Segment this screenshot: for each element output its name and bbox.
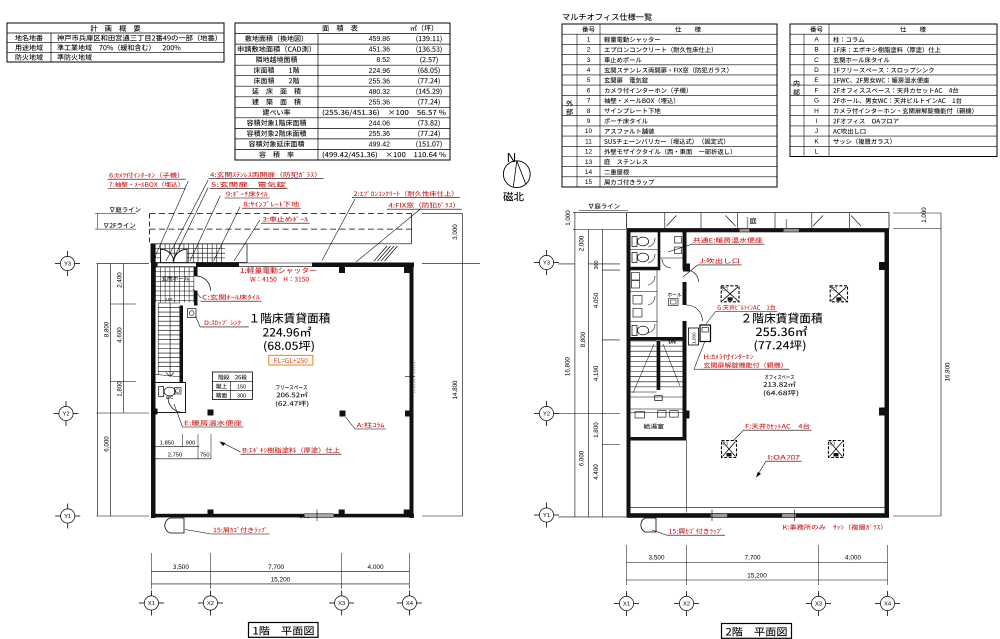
- svg-text:7,700: 7,700: [745, 555, 761, 562]
- svg-text:A: A: [814, 37, 819, 44]
- svg-text:15,200: 15,200: [747, 573, 767, 580]
- svg-text:X4: X4: [884, 602, 892, 608]
- svg-text:X2: X2: [683, 602, 690, 608]
- svg-text:14,800: 14,800: [452, 380, 459, 399]
- svg-text:DN: DN: [669, 340, 677, 346]
- svg-text:16,800: 16,800: [564, 357, 571, 376]
- svg-text:4,400: 4,400: [593, 464, 600, 480]
- svg-text:X1: X1: [148, 601, 155, 607]
- svg-text:N: N: [507, 150, 516, 165]
- svg-text:I: I: [816, 118, 818, 125]
- svg-text:Y1: Y1: [64, 514, 71, 520]
- svg-text:900: 900: [186, 440, 196, 446]
- svg-text:C: C: [814, 57, 819, 64]
- svg-text:255.36: 255.36: [369, 99, 391, 106]
- svg-text:Y3: Y3: [64, 262, 71, 268]
- svg-text:X1: X1: [623, 602, 630, 608]
- svg-text:459.86: 459.86: [369, 36, 391, 43]
- svg-text:10: 10: [585, 128, 593, 135]
- svg-text:G: G: [814, 98, 819, 105]
- svg-text:1,800: 1,800: [593, 422, 600, 438]
- svg-text:Y2: Y2: [62, 412, 69, 418]
- svg-text:255.36: 255.36: [369, 131, 391, 138]
- svg-text:12: 12: [585, 149, 593, 156]
- svg-text:2,400: 2,400: [117, 272, 124, 288]
- svg-text:480.32: 480.32: [369, 89, 391, 96]
- svg-text:4,050: 4,050: [593, 292, 600, 308]
- svg-text:X2: X2: [207, 601, 214, 607]
- svg-text:451.36: 451.36: [369, 47, 391, 54]
- svg-text:2: 2: [587, 47, 591, 54]
- svg-text:15: 15: [585, 179, 593, 186]
- svg-text:3,500: 3,500: [173, 564, 189, 571]
- svg-text:E: E: [814, 77, 819, 84]
- svg-text:8.52: 8.52: [376, 57, 390, 64]
- svg-text:14: 14: [585, 169, 593, 176]
- svg-text:X3: X3: [338, 601, 345, 607]
- svg-text:3,500: 3,500: [649, 555, 665, 562]
- svg-text:300: 300: [237, 393, 246, 399]
- svg-text:4,000: 4,000: [845, 555, 861, 562]
- svg-text:15,200: 15,200: [271, 576, 291, 583]
- svg-text:3: 3: [587, 57, 591, 64]
- svg-text:224.96: 224.96: [369, 68, 391, 75]
- svg-text:2,750: 2,750: [168, 452, 183, 458]
- svg-text:750: 750: [200, 452, 210, 458]
- svg-text:J: J: [815, 128, 818, 135]
- svg-text:244.06: 244.06: [369, 120, 391, 127]
- svg-text:2,000: 2,000: [579, 235, 586, 251]
- svg-text:H: H: [814, 108, 819, 115]
- svg-text:1,000: 1,000: [565, 210, 572, 226]
- svg-text:4,190: 4,190: [593, 365, 600, 381]
- svg-text:K: K: [814, 138, 819, 145]
- svg-text:Y1: Y1: [543, 513, 550, 519]
- svg-text:255.36: 255.36: [369, 78, 391, 85]
- svg-text:8: 8: [587, 108, 591, 115]
- svg-text:1,800: 1,800: [117, 381, 124, 397]
- svg-text:6,000: 6,000: [579, 450, 586, 466]
- svg-text:X3: X3: [815, 602, 822, 608]
- svg-text:WC: WC: [166, 395, 173, 400]
- svg-text:4,600: 4,600: [117, 327, 124, 343]
- svg-text:4: 4: [587, 67, 591, 74]
- svg-text:16,800: 16,800: [945, 362, 952, 381]
- svg-text:150: 150: [237, 384, 246, 390]
- svg-text:Y3: Y3: [543, 261, 550, 267]
- svg-text:9: 9: [587, 118, 591, 125]
- svg-text:F: F: [815, 87, 819, 94]
- svg-text:D: D: [814, 67, 819, 74]
- svg-text:B: B: [814, 47, 818, 54]
- svg-text:499.42: 499.42: [369, 142, 391, 149]
- svg-text:11: 11: [585, 138, 592, 145]
- svg-text:7: 7: [587, 98, 591, 105]
- svg-text:1: 1: [587, 37, 591, 44]
- svg-text:8,800: 8,800: [104, 321, 111, 337]
- svg-text:L: L: [815, 149, 819, 156]
- svg-text:3,000: 3,000: [452, 224, 459, 240]
- svg-text:X4: X4: [406, 601, 414, 607]
- svg-text:Y2: Y2: [543, 412, 550, 418]
- svg-text:13: 13: [585, 159, 593, 166]
- svg-text:1,850: 1,850: [160, 440, 175, 446]
- svg-text:6,000: 6,000: [104, 436, 111, 452]
- svg-text:360: 360: [594, 260, 600, 269]
- svg-text:5: 5: [587, 77, 591, 84]
- svg-text:1,000: 1,000: [692, 332, 697, 344]
- svg-text:6: 6: [587, 87, 591, 94]
- svg-text:7,700: 7,700: [268, 564, 284, 571]
- svg-text:UP: UP: [166, 297, 172, 302]
- svg-text:1,000: 1,000: [921, 207, 928, 223]
- svg-text:4,000: 4,000: [368, 564, 384, 571]
- svg-text:8,800: 8,800: [580, 331, 587, 347]
